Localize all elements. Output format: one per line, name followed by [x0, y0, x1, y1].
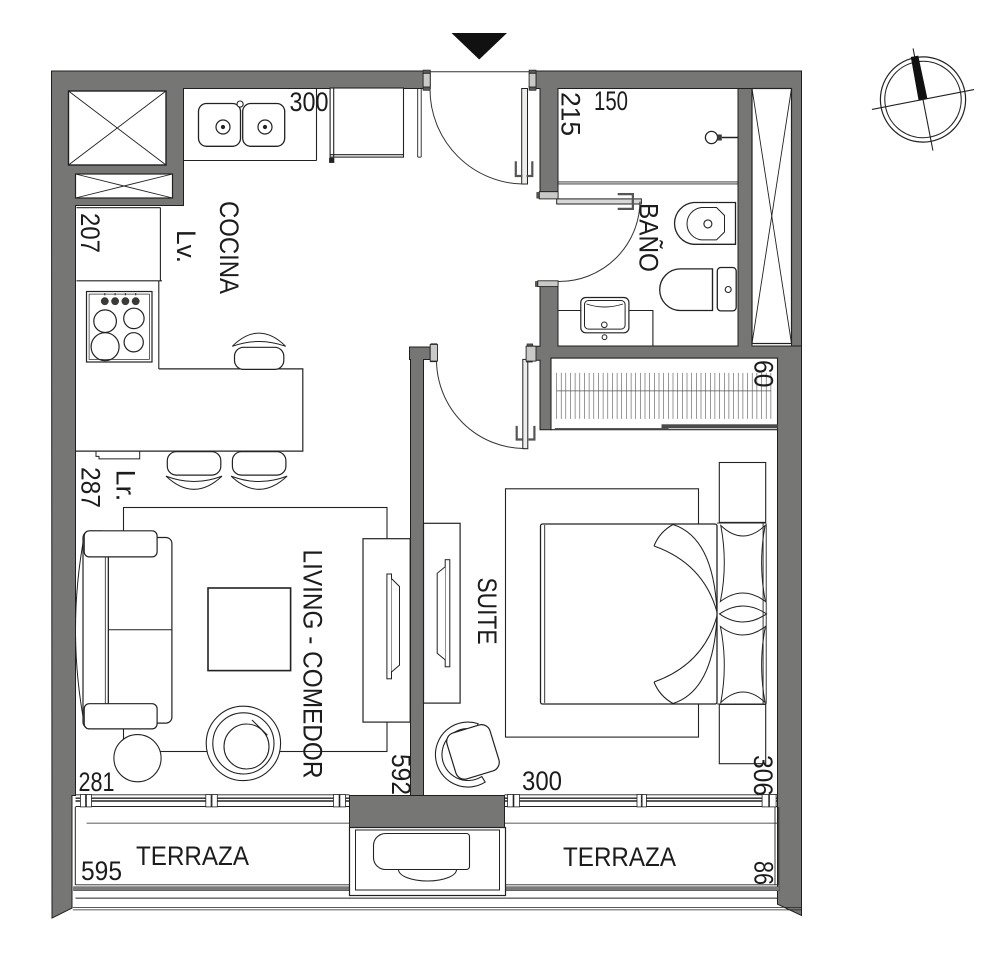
svg-text:300: 300 — [522, 766, 562, 796]
svg-text:LIVING - COMEDOR: LIVING - COMEDOR — [298, 550, 328, 779]
svg-text:COCINA: COCINA — [214, 201, 244, 294]
svg-text:215: 215 — [556, 92, 586, 136]
svg-text:207: 207 — [75, 213, 105, 253]
svg-text:281: 281 — [79, 767, 115, 797]
svg-text:592: 592 — [386, 754, 416, 795]
svg-text:306: 306 — [748, 755, 778, 796]
svg-text:86: 86 — [749, 861, 779, 885]
svg-text:Lr.: Lr. — [111, 470, 141, 502]
svg-text:300: 300 — [290, 87, 329, 117]
svg-text:287: 287 — [76, 467, 106, 508]
svg-text:150: 150 — [594, 86, 628, 116]
svg-text:BAÑO: BAÑO — [634, 203, 665, 272]
svg-text:Lv.: Lv. — [171, 230, 201, 263]
svg-text:60: 60 — [749, 360, 779, 388]
svg-text:SUITE: SUITE — [472, 578, 502, 645]
svg-text:TERRAZA: TERRAZA — [563, 842, 676, 872]
svg-text:595: 595 — [81, 856, 122, 886]
svg-text:TERRAZA: TERRAZA — [136, 841, 249, 871]
